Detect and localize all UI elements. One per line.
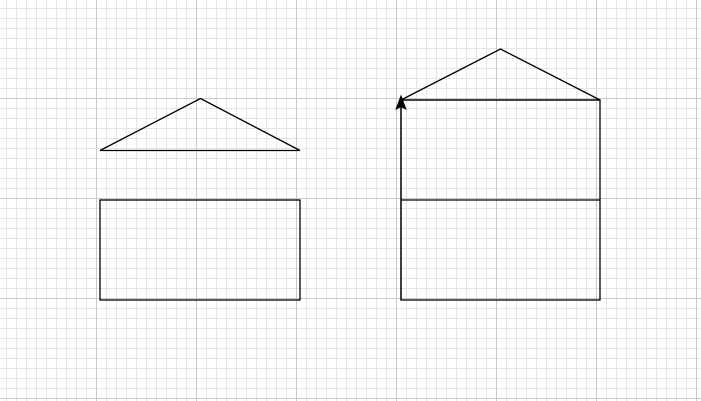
- upward-arrow-connector[interactable]: [396, 96, 406, 300]
- small-house-body-rectangle[interactable]: [100, 200, 300, 300]
- small-house-roof-triangle[interactable]: [100, 99, 300, 151]
- shape-layer: [0, 0, 701, 401]
- drawing-canvas[interactable]: [0, 0, 701, 401]
- large-house-roof-triangle[interactable]: [401, 49, 600, 100]
